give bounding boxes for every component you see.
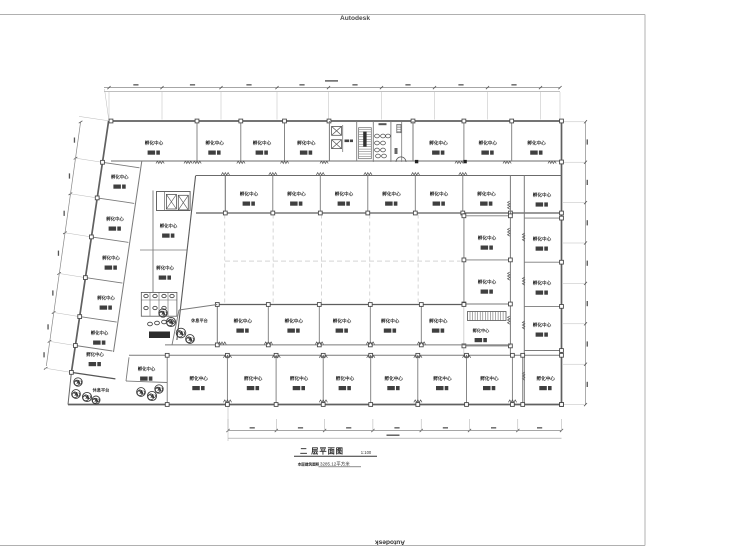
svg-text:孵化中心: 孵化中心 xyxy=(335,191,354,198)
svg-text:休息平台: 休息平台 xyxy=(92,387,110,394)
svg-text:孵化中心: 孵化中心 xyxy=(473,327,491,334)
svg-text:孵化中心: 孵化中心 xyxy=(430,191,449,198)
svg-text:孵化中心: 孵化中心 xyxy=(336,375,355,382)
svg-text:孵化中心: 孵化中心 xyxy=(533,322,552,329)
svg-text:孵化中心: 孵化中心 xyxy=(91,330,109,337)
svg-text:孵化中心: 孵化中心 xyxy=(527,140,546,147)
svg-text:孵化中心: 孵化中心 xyxy=(97,295,115,302)
svg-text:孵化中心: 孵化中心 xyxy=(385,375,404,382)
svg-text:本层建筑面积: 本层建筑面积 xyxy=(297,461,320,466)
svg-text:孵化中心: 孵化中心 xyxy=(138,366,156,373)
svg-text:孵化中心: 孵化中心 xyxy=(478,279,497,286)
svg-text:孵化中心: 孵化中心 xyxy=(333,318,352,325)
svg-text:孵化中心: 孵化中心 xyxy=(111,174,129,181)
svg-text:孵化中心: 孵化中心 xyxy=(106,216,124,223)
svg-text:孵化中心: 孵化中心 xyxy=(480,375,499,382)
svg-text:休息平台: 休息平台 xyxy=(190,317,208,324)
svg-text:孵化中心: 孵化中心 xyxy=(206,140,225,147)
svg-text:Autodesk: Autodesk xyxy=(375,539,405,546)
svg-text:孵化中心: 孵化中心 xyxy=(253,140,272,147)
svg-text:孵化中心: 孵化中心 xyxy=(381,318,400,325)
svg-text:孵化中心: 孵化中心 xyxy=(160,223,178,230)
svg-text:1:100: 1:100 xyxy=(361,450,372,455)
svg-text:孵化中心: 孵化中心 xyxy=(533,280,552,287)
svg-text:孵化中心: 孵化中心 xyxy=(287,191,306,198)
svg-text:孵化中心: 孵化中心 xyxy=(145,140,164,147)
svg-text:Autodesk: Autodesk xyxy=(340,15,370,22)
svg-text:孵化中心: 孵化中心 xyxy=(102,255,120,262)
svg-text:孵化中心: 孵化中心 xyxy=(479,140,498,147)
svg-text:孵化中心: 孵化中心 xyxy=(533,192,552,199)
svg-text:孵化中心: 孵化中心 xyxy=(240,191,259,198)
svg-text:孵化中心: 孵化中心 xyxy=(429,318,448,325)
svg-text:孵化中心: 孵化中心 xyxy=(234,318,253,325)
svg-text:孵化中心: 孵化中心 xyxy=(382,191,401,198)
svg-text:孵化中心: 孵化中心 xyxy=(290,375,309,382)
svg-text:孵化中心: 孵化中心 xyxy=(537,375,556,382)
svg-text:孵化中心: 孵化中心 xyxy=(86,351,104,358)
svg-text:二 层平面图: 二 层平面图 xyxy=(300,447,344,456)
svg-text:孵化中心: 孵化中心 xyxy=(533,236,552,243)
svg-text:孵化中心: 孵化中心 xyxy=(285,318,304,325)
svg-text:孵化中心: 孵化中心 xyxy=(477,191,496,198)
svg-text:3285.12平方米: 3285.12平方米 xyxy=(320,460,350,467)
svg-text:孵化中心: 孵化中心 xyxy=(478,235,497,242)
svg-text:孵化中心: 孵化中心 xyxy=(433,375,452,382)
svg-text:孵化中心: 孵化中心 xyxy=(297,140,316,147)
svg-text:孵化中心: 孵化中心 xyxy=(156,265,174,272)
svg-text:孵化中心: 孵化中心 xyxy=(244,375,263,382)
svg-text:孵化中心: 孵化中心 xyxy=(429,140,448,147)
svg-text:孵化中心: 孵化中心 xyxy=(190,375,209,382)
